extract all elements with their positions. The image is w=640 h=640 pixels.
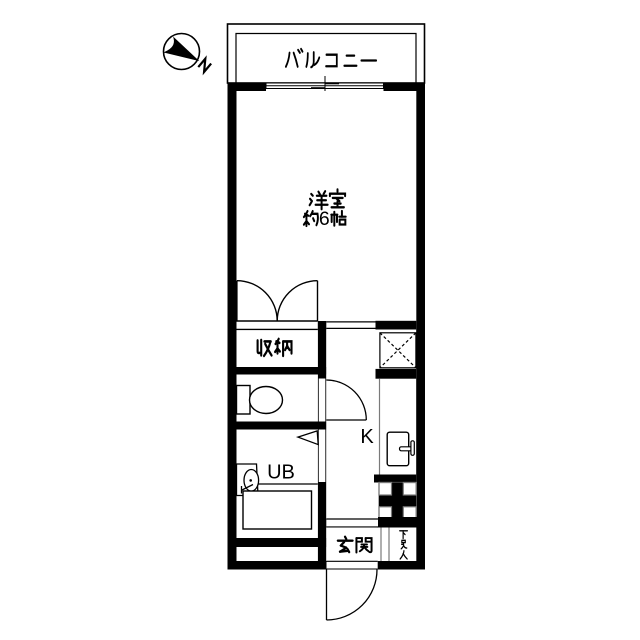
- svg-text:UB: UB: [267, 462, 295, 484]
- svg-text:6: 6: [319, 208, 330, 230]
- svg-text:K: K: [360, 426, 374, 448]
